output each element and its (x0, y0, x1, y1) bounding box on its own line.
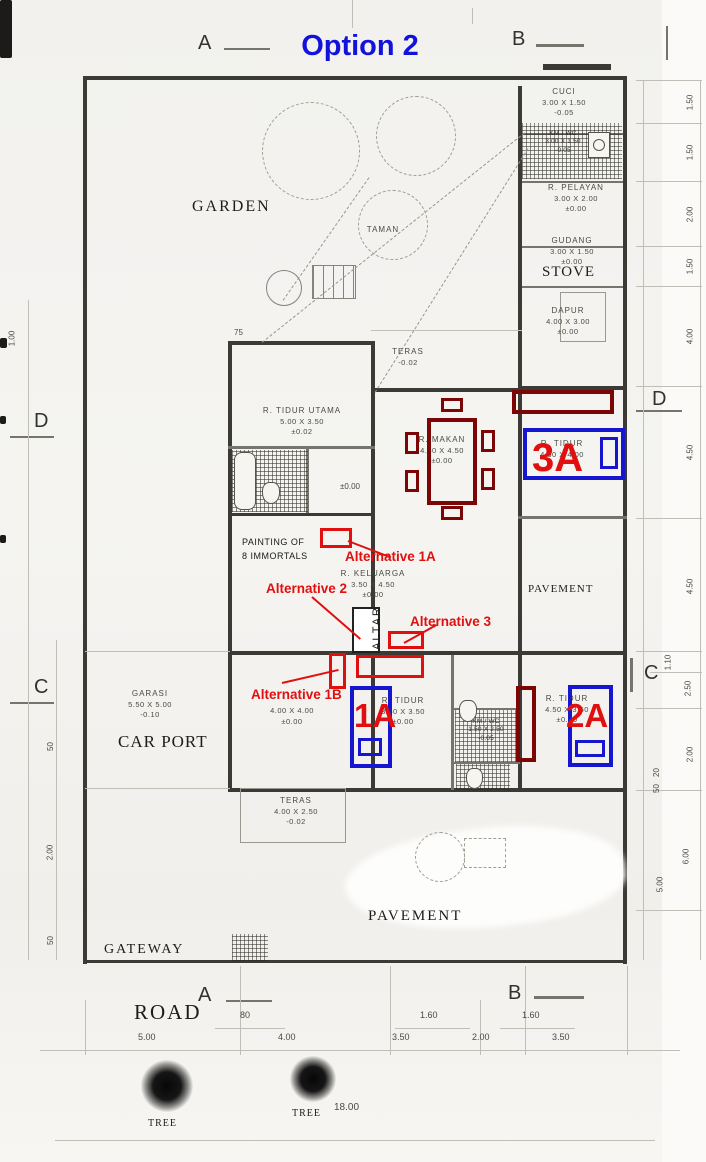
ruler-tick (352, 0, 353, 28)
grid-letter-c-right: C (644, 662, 658, 685)
wall-utama-south (228, 513, 375, 516)
dim-line (700, 80, 701, 960)
boundary-wall-south (83, 960, 627, 963)
bed-tag-3a: 3A (532, 436, 583, 481)
dim-tick (636, 651, 702, 652)
dim-line (55, 1140, 655, 1141)
dim-value: 6.00 (681, 849, 690, 865)
dim-value: 4.00 (685, 329, 694, 345)
dim-tick (636, 123, 702, 124)
dim-total-width: 18.00 (334, 1102, 359, 1113)
dim-value: 2.00 (685, 207, 694, 223)
scan-smudge (0, 338, 7, 348)
grid-letter-d-left: D (34, 410, 48, 433)
room-dims: 4.00 X 4.00 (242, 706, 342, 717)
wall-bath-north (228, 446, 375, 449)
dim-subline (395, 1028, 470, 1029)
dim-value: 2.00 (45, 845, 54, 861)
dim-value: 4.00 (278, 1032, 296, 1042)
alt-bed-rect-2a (516, 686, 536, 762)
note-alternative-2: Alternative 2 (266, 581, 347, 596)
room-name: TERAS (360, 346, 456, 358)
dim-value: 3.50 (392, 1032, 410, 1042)
room-dapur: DAPUR 4.00 X 3.00 ±0.00 (520, 305, 616, 338)
scan-smudge (0, 416, 6, 424)
dim-line (56, 640, 57, 960)
dim-value: 2.00 (472, 1032, 490, 1042)
label-carport: CAR PORT (118, 732, 208, 752)
dim-value: 1.50 (685, 95, 694, 111)
dim-value: 1.10 (663, 655, 672, 671)
dim-value: 1.60 (522, 1010, 540, 1020)
label-tree-1: TREE (148, 1118, 177, 1129)
label-pavement-mid: PAVEMENT (528, 583, 593, 595)
wall-bedroom3a-south (518, 516, 627, 519)
room-tidur-utama: R. TIDUR UTAMA 5.00 X 3.50 ±0.02 (232, 405, 372, 438)
garden-steps (312, 265, 356, 299)
dim-line (40, 1050, 680, 1051)
grid-letter-b-bottom: B (508, 982, 521, 1005)
alt-rect-1a (320, 528, 352, 548)
room-level: ±0.00 (528, 204, 624, 215)
room-kmwc-mid: KM / WC 1.50 X 2.50 -0.05 (456, 718, 516, 743)
room-level: -0.02 (246, 817, 346, 828)
dim-value: 5.00 (138, 1032, 156, 1042)
dim-tick (480, 1000, 481, 1055)
dining-chair (481, 430, 495, 452)
dim-tick (636, 246, 702, 247)
room-name: KM / WC (456, 718, 516, 726)
note-alternative-1a: Alternative 1A (345, 549, 436, 564)
gateway-hatch (232, 934, 268, 961)
floor-plan-sheet: Option 2 A B D D C C A B (0, 0, 706, 1162)
room-dims: 4.00 X 3.00 (520, 317, 616, 328)
dining-chair (441, 506, 463, 520)
tree-canopy-sketch (262, 102, 360, 200)
wall-bedrooms-north (228, 651, 627, 655)
dim-value: 1.50 (685, 145, 694, 161)
label-stove: STOVE (542, 264, 595, 281)
label-road: ROAD (134, 1000, 202, 1025)
toilet-icon (466, 768, 483, 789)
room-dims: 5.50 X 5.00 (100, 700, 200, 711)
dim-tick (636, 910, 702, 911)
room-teras-atas: TERAS -0.02 (360, 346, 456, 368)
room-dims: 3.00 X 1.50 (524, 247, 620, 258)
wall-bedroom1a-east (451, 655, 454, 790)
wall-top-protrusion (543, 64, 611, 70)
dining-chair (405, 470, 419, 492)
garden-rect-sketch (464, 838, 506, 868)
label-garden: GARDEN (192, 198, 271, 216)
painting-line1: PAINTING OF (242, 535, 308, 549)
dim-tick (390, 966, 391, 1055)
room-name: GUDANG (524, 235, 620, 247)
pillow-2a (575, 740, 605, 757)
room-garasi: GARASI 5.50 X 5.00 -0.10 (100, 688, 200, 721)
dim-tick (636, 286, 702, 287)
dim-value: 2.00 (685, 747, 694, 763)
room-level: -0.02 (360, 358, 456, 369)
dim-value: 1.00 (7, 331, 16, 347)
grid-tick (226, 1000, 272, 1002)
room-name: R. KELUARGA (323, 568, 423, 580)
ruler-tick (666, 26, 668, 60)
grid-tick (10, 702, 54, 704)
dim-value: 75 (234, 328, 243, 337)
dim-tick (636, 708, 702, 709)
room-4x4: 4.00 X 4.00 ±0.00 (242, 706, 342, 728)
dim-tick (627, 966, 628, 1055)
room-level: -0.05 (456, 735, 516, 743)
bathtub-icon (234, 452, 256, 510)
room-dims: 3.00 X 1.50 (524, 138, 602, 146)
dim-value: 80 (240, 1010, 250, 1020)
toilet-icon (262, 482, 280, 504)
dim-subline (500, 1028, 575, 1029)
label-taman: TAMAN (358, 224, 408, 236)
grid-letter-b-top: B (512, 28, 525, 51)
room-dims: 4.00 X 2.50 (246, 807, 346, 818)
grid-tick (534, 996, 584, 999)
dim-value: 2.50 (683, 681, 692, 697)
dim-tick (636, 790, 702, 791)
garage-edge-north (85, 651, 230, 652)
painting-line2: 8 IMMORTALS (242, 549, 308, 563)
grid-letter-c-left: C (34, 676, 48, 699)
label-gateway: GATEWAY (104, 942, 184, 958)
room-dims: 3.00 X 2.00 (528, 194, 624, 205)
dining-table (427, 418, 477, 505)
room-dims: 5.00 X 3.50 (232, 417, 372, 428)
garden-circle-sketch (415, 832, 465, 882)
room-level: ±0.00 (242, 717, 342, 728)
dim-value: 50 (46, 936, 55, 945)
room-teras-bawah: TERAS 4.00 X 2.50 -0.02 (246, 795, 346, 828)
room-level: ±0.00 (520, 327, 616, 338)
note-alternative-1b: Alternative 1B (251, 687, 342, 702)
grid-tick (630, 658, 633, 692)
dim-line (643, 80, 644, 960)
room-level: -0.10 (100, 710, 200, 721)
grid-letter-a-top: A (198, 32, 211, 55)
dining-chair (441, 398, 463, 412)
room-dims: 3.00 X 1.50 (516, 98, 612, 109)
dining-chair (405, 432, 419, 454)
boundary-wall-west (83, 76, 87, 964)
bed-tag-1a: 1A (354, 697, 396, 735)
room-level: -0.05 (524, 147, 602, 155)
room-level: -0.05 (516, 108, 612, 119)
dim-subline (215, 1028, 285, 1029)
pillow-3a (600, 437, 618, 469)
dim-value: 50 (652, 784, 661, 793)
garage-edge-south (85, 788, 230, 789)
wall-utama-north (228, 341, 375, 345)
dim-value: 20 (652, 768, 661, 777)
room-dims: 1.50 X 2.50 (456, 726, 516, 734)
grid-tick (224, 48, 270, 50)
room-kmwc-top: KM / WC 3.00 X 1.50 -0.05 (524, 130, 602, 155)
alt-bed-rect-3a (512, 390, 614, 414)
room-name: CUCI (516, 86, 612, 98)
dim-value: 50 (46, 742, 55, 751)
scan-smudge (0, 0, 12, 58)
room-name: R. PELAYAN (528, 182, 624, 194)
dim-tick (636, 518, 702, 519)
dim-value: 1.50 (685, 259, 694, 275)
dim-line (28, 300, 29, 960)
wc-small-hatch (456, 764, 510, 790)
room-level: ±0.02 (232, 427, 372, 438)
wall-partition (522, 286, 623, 288)
grid-letter-d-right: D (652, 388, 666, 411)
dim-value: 4.50 (685, 579, 694, 595)
page-title: Option 2 (250, 30, 470, 63)
label-pavement-bottom: PAVEMENT (368, 908, 462, 925)
dim-value: 1.60 (420, 1010, 438, 1020)
dim-tick (85, 1000, 86, 1055)
dim-value: 3.50 (552, 1032, 570, 1042)
scan-smudge (0, 535, 6, 543)
pillow-1a (358, 738, 382, 756)
note-alternative-3: Alternative 3 (410, 614, 491, 629)
wall-makan-north (371, 388, 522, 392)
alt-rect-corridor (356, 655, 424, 678)
grid-tick (536, 44, 584, 47)
label-painting: PAINTING OF 8 IMMORTALS (242, 535, 308, 564)
room-cuci: CUCI 3.00 X 1.50 -0.05 (516, 86, 612, 119)
room-name: DAPUR (520, 305, 616, 317)
room-name: R. TIDUR UTAMA (232, 405, 372, 417)
dim-value: 4.50 (685, 445, 694, 461)
room-name: TERAS (246, 795, 346, 807)
planter-circle (266, 270, 302, 306)
tree-blob (290, 1056, 336, 1102)
teras-edge (371, 330, 522, 331)
dining-chair (481, 468, 495, 490)
room-name: GARASI (100, 688, 200, 700)
room-pelayan: R. PELAYAN 3.00 X 2.00 ±0.00 (528, 182, 624, 215)
dim-tick (636, 181, 702, 182)
tree-canopy-sketch (376, 96, 456, 176)
label-tree-2: TREE (292, 1108, 321, 1119)
boundary-wall-north (83, 76, 627, 80)
dim-tick (650, 672, 702, 673)
tree-blob (141, 1060, 193, 1112)
bed-tag-2a: 2A (566, 697, 608, 735)
grid-tick (10, 436, 54, 438)
level-mark: ±0.00 (340, 482, 360, 491)
ruler-tick (472, 8, 473, 24)
dim-tick (636, 386, 702, 387)
dim-tick (636, 80, 702, 81)
room-name: KM / WC (524, 130, 602, 138)
dim-value: 5.00 (655, 877, 664, 893)
